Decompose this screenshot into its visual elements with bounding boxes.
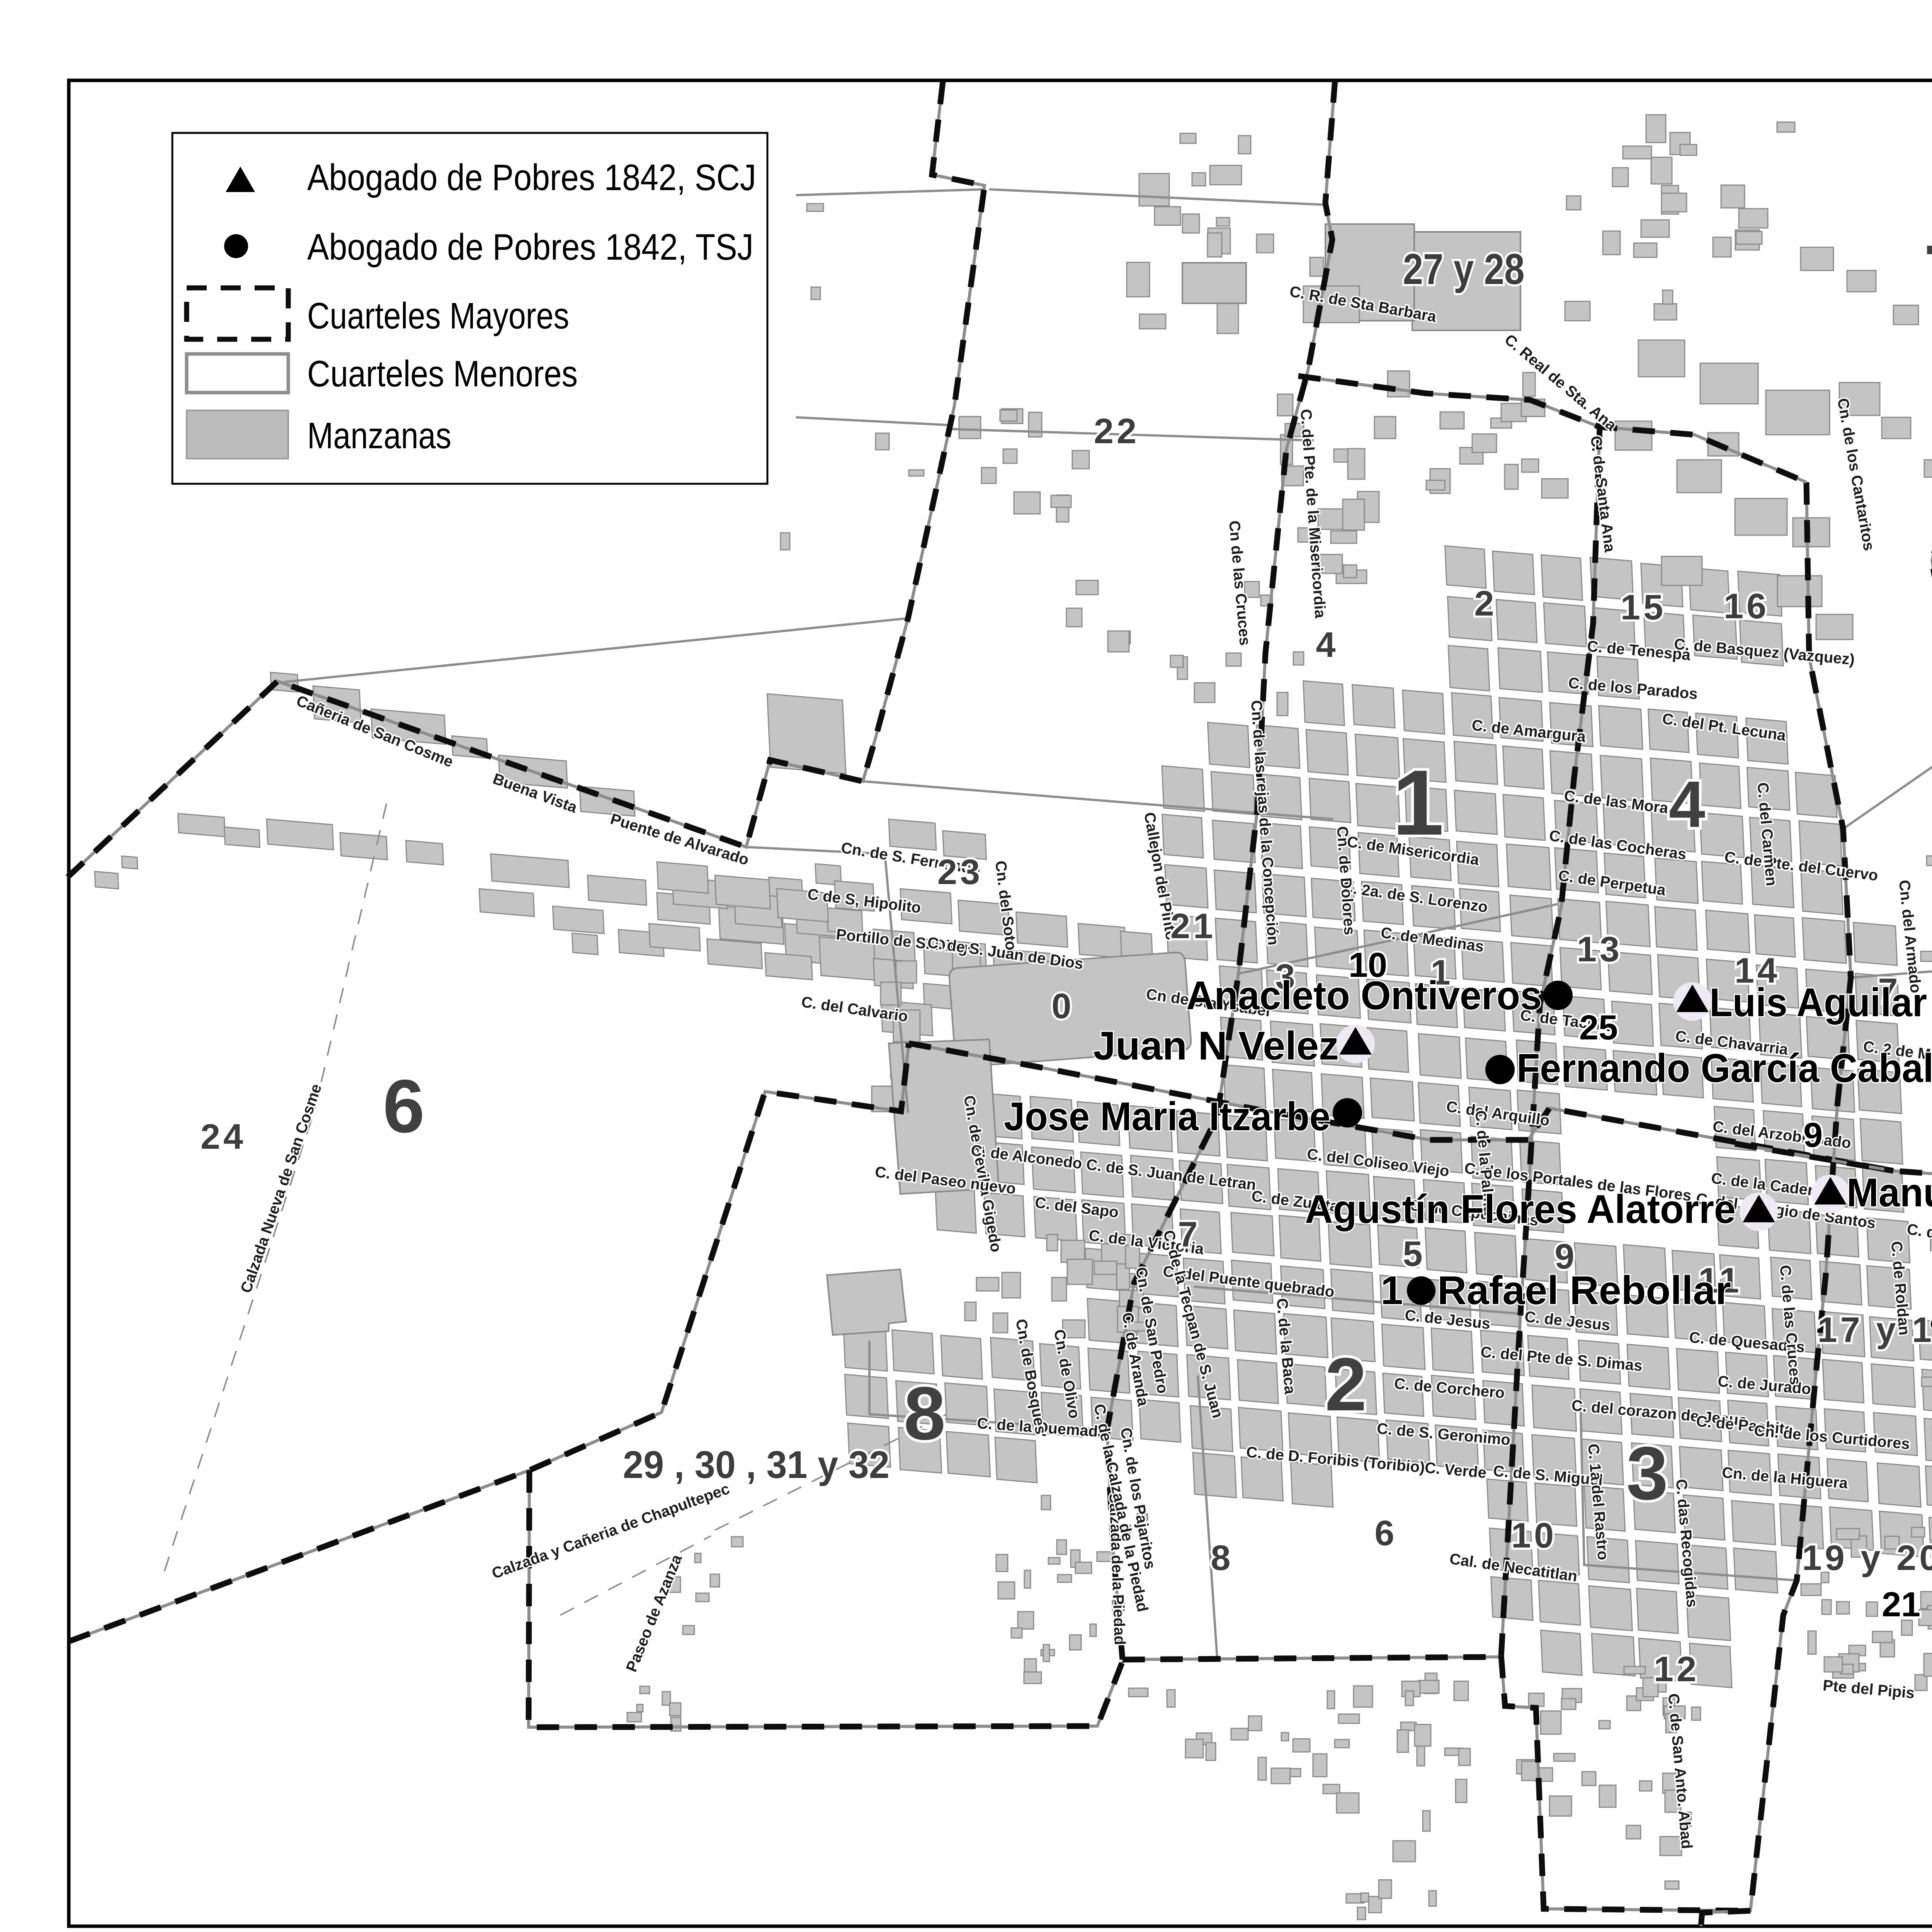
svg-text:8: 8 bbox=[1211, 1538, 1233, 1578]
svg-text:29 , 30 , 31 y 32: 29 , 30 , 31 y 32 bbox=[623, 1443, 889, 1486]
svg-text:4: 4 bbox=[1316, 625, 1338, 665]
svg-text:8: 8 bbox=[904, 1371, 951, 1456]
svg-text:12: 12 bbox=[1654, 1650, 1699, 1689]
svg-text:Rafael Rebollar: Rafael Rebollar bbox=[1437, 1268, 1731, 1313]
svg-text:Cuarteles Menores: Cuarteles Menores bbox=[307, 353, 578, 395]
svg-text:2: 2 bbox=[1325, 1342, 1372, 1427]
svg-text:7: 7 bbox=[1924, 230, 1932, 314]
svg-text:21: 21 bbox=[1170, 906, 1216, 946]
svg-text:Anacleto Ontiveros: Anacleto Ontiveros bbox=[1186, 973, 1542, 1018]
svg-text:Cuarteles Mayores: Cuarteles Mayores bbox=[307, 295, 569, 337]
svg-text:Abogado de Pobres 1842, SCJ: Abogado de Pobres 1842, SCJ bbox=[307, 157, 756, 198]
svg-text:Manzanas: Manzanas bbox=[307, 415, 451, 456]
svg-text:4: 4 bbox=[1669, 768, 1711, 841]
svg-text:25: 25 bbox=[1579, 1009, 1618, 1047]
svg-text:19 y 20: 19 y 20 bbox=[1802, 1538, 1932, 1578]
svg-text:Jose Maria Itzarbe: Jose Maria Itzarbe bbox=[1004, 1094, 1330, 1139]
svg-text:16: 16 bbox=[1724, 587, 1769, 626]
svg-text:13: 13 bbox=[1577, 930, 1622, 969]
svg-text:Abogado de Pobres 1842, TSJ: Abogado de Pobres 1842, TSJ bbox=[307, 226, 753, 268]
svg-text:15: 15 bbox=[1621, 588, 1666, 627]
svg-text:7: 7 bbox=[1178, 1215, 1201, 1254]
svg-text:Juan N Velez: Juan N Velez bbox=[1093, 1024, 1339, 1068]
svg-text:0: 0 bbox=[1051, 986, 1074, 1026]
svg-text:27 y 28: 27 y 28 bbox=[1403, 245, 1525, 293]
svg-text:10: 10 bbox=[1511, 1516, 1557, 1555]
svg-text:6: 6 bbox=[383, 1064, 430, 1148]
svg-text:6: 6 bbox=[1374, 1514, 1397, 1553]
svg-text:Luis Aguilar y Medina: Luis Aguilar y Medina bbox=[1709, 980, 1932, 1025]
svg-text:22: 22 bbox=[1094, 412, 1139, 451]
svg-text:Fernando García Caballero: Fernando García Caballero bbox=[1517, 1046, 1932, 1091]
svg-text:1: 1 bbox=[1381, 1268, 1403, 1313]
svg-text:17 y 18: 17 y 18 bbox=[1818, 1310, 1932, 1350]
svg-text:23: 23 bbox=[937, 852, 983, 892]
svg-text:24: 24 bbox=[201, 1117, 246, 1156]
svg-text:2: 2 bbox=[1474, 584, 1497, 623]
svg-text:5: 5 bbox=[1403, 1234, 1425, 1274]
svg-text:1: 1 bbox=[1392, 751, 1449, 854]
svg-text:Manuel del Río: Manuel del Río bbox=[1847, 1170, 1932, 1215]
svg-text:Agustín Flores Alatorre: Agustín Flores Alatorre bbox=[1305, 1187, 1736, 1232]
svg-text:9: 9 bbox=[1803, 1116, 1823, 1155]
svg-text:21: 21 bbox=[1882, 1585, 1920, 1624]
svg-text:3: 3 bbox=[1626, 1431, 1673, 1515]
